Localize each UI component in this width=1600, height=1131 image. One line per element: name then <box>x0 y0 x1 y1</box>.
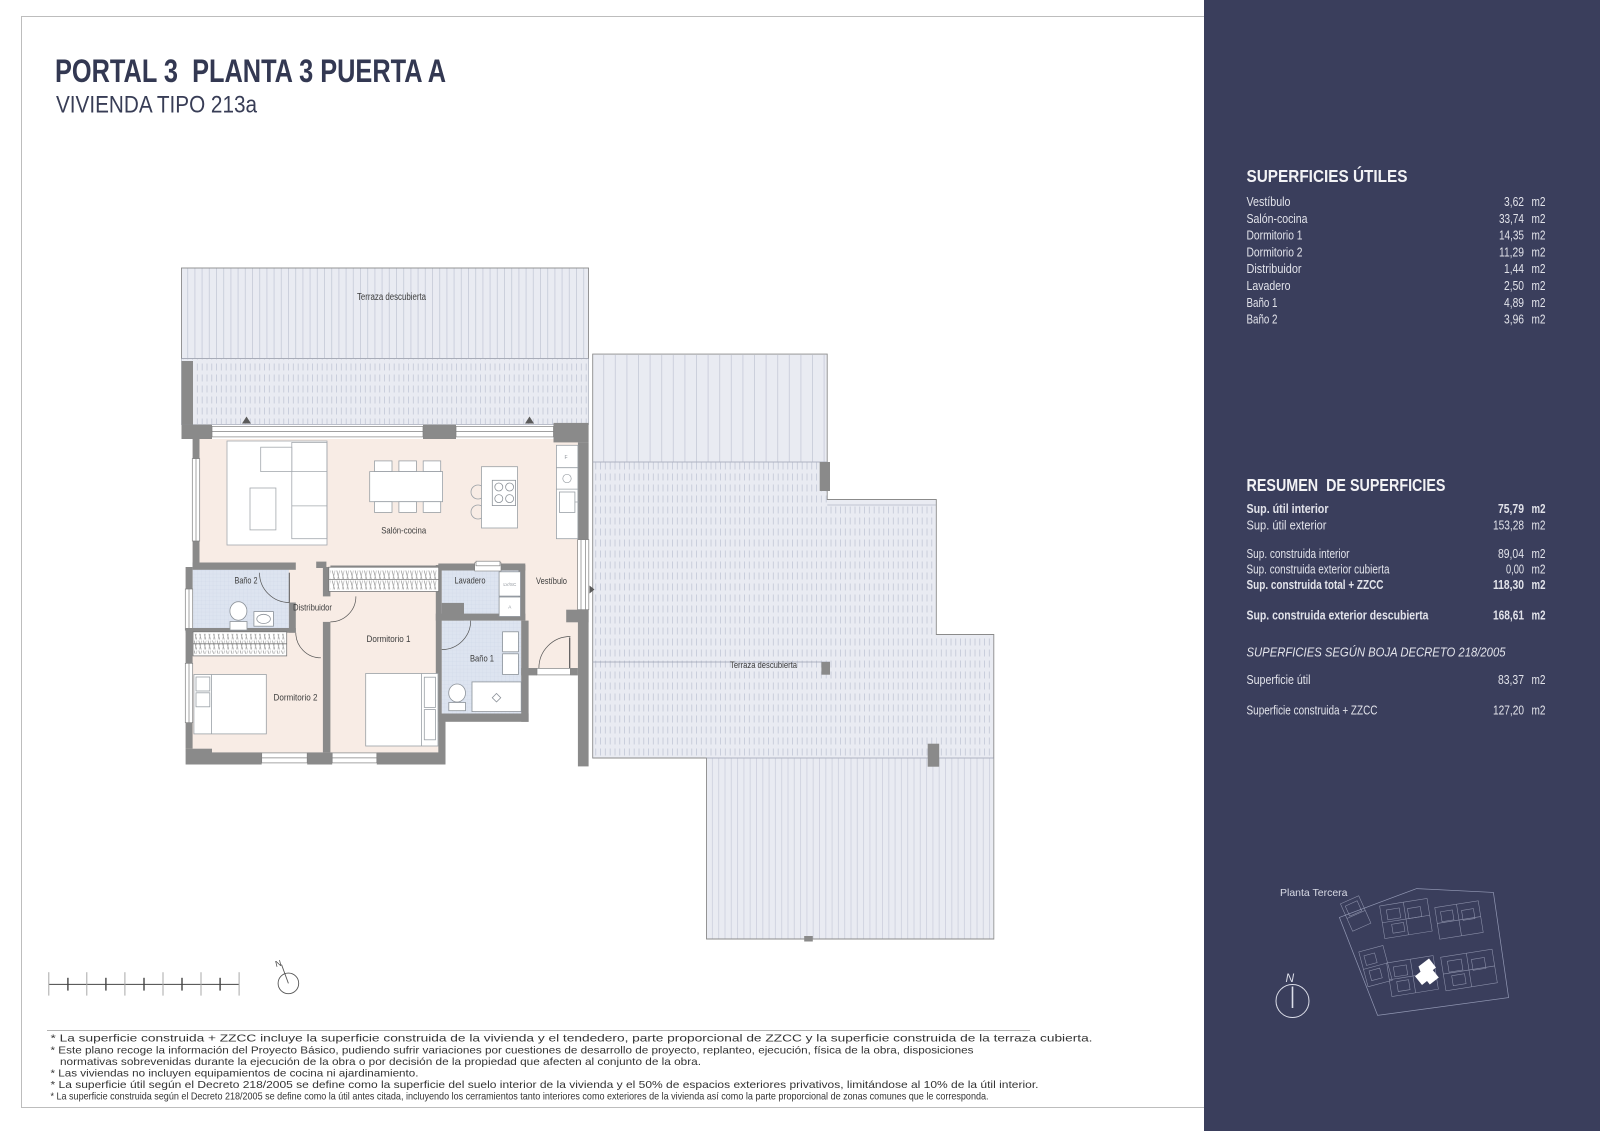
svg-text:m2: m2 <box>1532 501 1546 516</box>
svg-text:Sup. construida exterior descu: Sup. construida exterior descubierta <box>1247 608 1430 623</box>
svg-text:Sup. útil interior: Sup. útil interior <box>1247 501 1329 516</box>
svg-text:127,20: 127,20 <box>1493 703 1524 718</box>
svg-text:m2: m2 <box>1532 546 1546 561</box>
svg-text:168,61: 168,61 <box>1493 608 1524 623</box>
svg-text:1,44: 1,44 <box>1504 261 1524 276</box>
svg-text:153,28: 153,28 <box>1493 518 1524 533</box>
svg-text:Baño 1: Baño 1 <box>470 654 494 664</box>
svg-text:m2: m2 <box>1532 211 1546 226</box>
svg-text:33,74: 33,74 <box>1499 211 1524 226</box>
svg-text:75,79: 75,79 <box>1498 501 1524 516</box>
svg-text:* Las viviendas no incluyen eq: * Las viviendas no incluyen equipamiento… <box>51 1069 419 1080</box>
svg-text:Sup. útil exterior: Sup. útil exterior <box>1247 518 1328 533</box>
svg-text:Distribuidor: Distribuidor <box>293 603 332 613</box>
svg-text:Salón-cocina: Salón-cocina <box>1247 211 1309 226</box>
svg-text:Salón-cocina: Salón-cocina <box>381 526 427 536</box>
svg-text:Superficie útil: Superficie útil <box>1247 672 1311 687</box>
svg-text:m2: m2 <box>1532 562 1546 577</box>
svg-text:Lavadero: Lavadero <box>455 576 486 586</box>
svg-text:PORTAL 3 PLANTA 3 PUERTA A: PORTAL 3 PLANTA 3 PUERTA A <box>55 53 446 89</box>
svg-text:* La superficie construida + Z: * La superficie construida + ZZCC incluy… <box>51 1034 1093 1045</box>
svg-text:Baño 2: Baño 2 <box>1247 312 1278 327</box>
svg-text:F: F <box>564 455 567 461</box>
svg-text:83,37: 83,37 <box>1498 672 1524 687</box>
svg-text:m2: m2 <box>1532 672 1546 687</box>
svg-text:m2: m2 <box>1532 295 1546 310</box>
svg-text:Superficie construida + ZZCC: Superficie construida + ZZCC <box>1247 703 1378 718</box>
svg-text:Dormitorio 2: Dormitorio 2 <box>1247 244 1303 259</box>
svg-text:LV/SC: LV/SC <box>503 582 517 587</box>
svg-text:SUPERFICIES SEGÚN BOJA DECRETO: SUPERFICIES SEGÚN BOJA DECRETO 218/2005 <box>1247 645 1507 660</box>
svg-text:Vestíbulo: Vestíbulo <box>536 576 567 586</box>
svg-text:89,04: 89,04 <box>1498 546 1524 561</box>
svg-text:normativas sobrevenidas durant: normativas sobrevenidas durante la ejecu… <box>60 1057 701 1068</box>
svg-text:m2: m2 <box>1532 703 1546 718</box>
svg-text:N: N <box>274 958 282 969</box>
svg-text:14,35: 14,35 <box>1499 228 1524 243</box>
svg-text:Terraza descubierta: Terraza descubierta <box>730 660 798 670</box>
svg-text:m2: m2 <box>1532 608 1546 623</box>
svg-text:0,00: 0,00 <box>1506 562 1524 577</box>
svg-text:2,50: 2,50 <box>1504 278 1524 293</box>
svg-text:Terraza descubierta: Terraza descubierta <box>357 292 426 303</box>
svg-text:m2: m2 <box>1532 228 1546 243</box>
svg-text:Baño 2: Baño 2 <box>235 576 258 586</box>
svg-text:Distribuidor: Distribuidor <box>1247 261 1303 276</box>
svg-text:* La superficie útil según el: * La superficie útil según el Decreto 21… <box>51 1080 1039 1091</box>
svg-text:m2: m2 <box>1532 278 1546 293</box>
svg-text:3,62: 3,62 <box>1504 194 1524 209</box>
svg-text:Planta Tercera: Planta Tercera <box>1280 887 1348 899</box>
svg-text:Dormitorio 2: Dormitorio 2 <box>274 693 318 703</box>
svg-text:Vestíbulo: Vestíbulo <box>1247 194 1291 209</box>
svg-text:m2: m2 <box>1532 261 1546 276</box>
svg-text:* La superficie construida seg: * La superficie construida según el Decr… <box>51 1092 989 1103</box>
svg-text:11,29: 11,29 <box>1499 244 1524 259</box>
svg-text:m2: m2 <box>1532 244 1546 259</box>
svg-text:N: N <box>1286 971 1295 985</box>
svg-text:RESUMEN DE SUPERFICIES: RESUMEN DE SUPERFICIES <box>1247 475 1446 495</box>
svg-text:3,96: 3,96 <box>1504 312 1524 327</box>
svg-text:m2: m2 <box>1532 577 1546 592</box>
svg-text:4,89: 4,89 <box>1504 295 1524 310</box>
svg-text:SUPERFICIES ÚTILES: SUPERFICIES ÚTILES <box>1247 165 1408 186</box>
svg-text:Sup. construida exterior cubie: Sup. construida exterior cubierta <box>1247 562 1391 577</box>
svg-text:Sup. construida total + ZZCC: Sup. construida total + ZZCC <box>1247 577 1384 592</box>
svg-text:Baño 1: Baño 1 <box>1247 295 1278 310</box>
svg-text:* Este plano recoge la informa: * Este plano recoge la información del P… <box>51 1046 974 1057</box>
svg-text:Lavadero: Lavadero <box>1247 278 1291 293</box>
svg-text:Dormitorio 1: Dormitorio 1 <box>1247 228 1303 243</box>
svg-text:118,30: 118,30 <box>1493 577 1524 592</box>
svg-text:Sup. construida interior: Sup. construida interior <box>1247 546 1351 561</box>
svg-text:Dormitorio 1: Dormitorio 1 <box>367 634 411 644</box>
svg-text:VIVIENDA TIPO 213a: VIVIENDA TIPO 213a <box>56 92 258 119</box>
svg-text:m2: m2 <box>1532 518 1546 533</box>
svg-text:m2: m2 <box>1532 312 1546 327</box>
svg-text:m2: m2 <box>1532 194 1546 209</box>
